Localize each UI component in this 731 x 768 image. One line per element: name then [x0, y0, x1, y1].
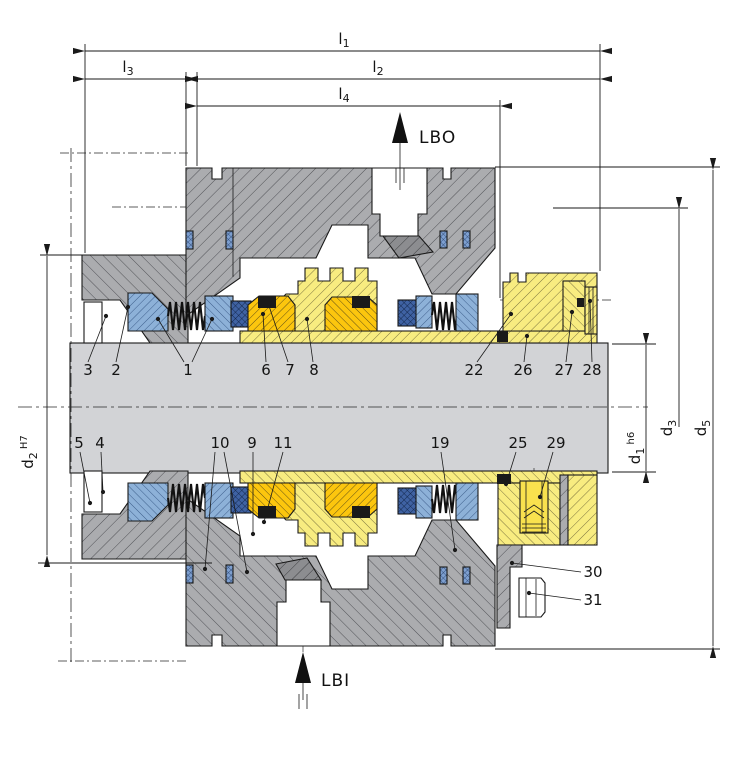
leader-dot-22 [509, 312, 513, 316]
leader-dot-27 [570, 310, 574, 314]
upper-elastomer-3 [497, 331, 508, 342]
clamp-right-block [568, 475, 597, 545]
part-label-11: 11 [273, 434, 292, 452]
drive-collar-assembly [503, 273, 597, 334]
upper-elastomer-2 [352, 296, 370, 308]
leader-dot-8 [305, 317, 309, 321]
leader-dot-31 [527, 591, 531, 595]
part-label-7: 7 [285, 361, 295, 379]
part-label-28: 28 [582, 361, 601, 379]
leader-dot-25 [504, 482, 508, 486]
leader-dot-10 [245, 570, 249, 574]
clamp-gray-strip [560, 475, 568, 545]
joint-oring-upper-3 [440, 231, 447, 248]
upper-sleeve [240, 331, 597, 343]
joint-oring-lower-1 [186, 565, 193, 583]
part-label-6: 6 [261, 361, 271, 379]
part-label-3: 3 [83, 361, 93, 379]
leader-dot-11 [262, 520, 266, 524]
part-label-30: 30 [583, 563, 602, 581]
lower-right-seat [456, 483, 478, 520]
joint-oring-lower-4 [463, 567, 470, 584]
leader-dot-9 [251, 532, 255, 536]
part-label-2: 2 [111, 361, 121, 379]
part-label-22: 22 [464, 361, 483, 379]
lower-oring-right [398, 488, 418, 514]
upper-oring-right [398, 300, 418, 326]
leader-dot-1 [210, 317, 214, 321]
leader-dot-2 [126, 305, 130, 309]
lower-flange-spacer [84, 471, 102, 512]
joint-oring-lower-3 [440, 567, 447, 584]
leader-dot-26 [525, 334, 529, 338]
grub-screw-body [520, 481, 548, 533]
lower-right-follower [416, 486, 432, 518]
seal-cross-section-drawing: l1 l3 l2 l4 d2 H7 d1 h6 d3 d5 LBO LBI 12… [0, 0, 731, 768]
leader-dot-5 [88, 501, 92, 505]
leader-dot-28 [588, 299, 592, 303]
leader-dot-1 [156, 317, 160, 321]
lower-spring-follower [205, 483, 233, 518]
part-label-31: 31 [583, 591, 602, 609]
joint-oring-upper-1 [186, 231, 193, 249]
part-label-4: 4 [95, 434, 105, 452]
grub-screw [520, 481, 548, 533]
part-label-1: 1 [183, 361, 193, 379]
leader-dot-10 [203, 567, 207, 571]
leader-dot-30 [510, 561, 514, 565]
leader-dot-4 [101, 490, 105, 494]
part-label-25: 25 [508, 434, 527, 452]
lbi-label: LBI [321, 671, 350, 691]
hex-bolt [519, 578, 545, 617]
hex-bolt-head [519, 578, 545, 617]
drawing-stage: l1 l3 l2 l4 d2 H7 d1 h6 d3 d5 LBO LBI 12… [0, 0, 731, 768]
joint-oring-upper-2 [226, 231, 233, 249]
joint-oring-lower-2 [226, 565, 233, 583]
part-label-26: 26 [513, 361, 532, 379]
lbo-label: LBO [419, 128, 456, 148]
part-label-29: 29 [546, 434, 565, 452]
part-label-27: 27 [554, 361, 573, 379]
upper-flange-spacer [84, 302, 102, 343]
leader-dot-7 [267, 304, 271, 308]
upper-right-follower [416, 296, 432, 328]
part-label-9: 9 [247, 434, 257, 452]
leader-dot-19 [453, 548, 457, 552]
part-label-10: 10 [210, 434, 229, 452]
part-label-5: 5 [74, 434, 84, 452]
joint-oring-upper-4 [463, 231, 470, 248]
lower-elastomer-2 [352, 506, 370, 518]
leader-dot-6 [261, 312, 265, 316]
leader-dot-29 [538, 495, 542, 499]
part-label-8: 8 [309, 361, 319, 379]
part-label-19: 19 [430, 434, 449, 452]
upper-right-seat [456, 294, 478, 331]
collar-black-seal [577, 298, 584, 307]
leader-dot-3 [104, 314, 108, 318]
